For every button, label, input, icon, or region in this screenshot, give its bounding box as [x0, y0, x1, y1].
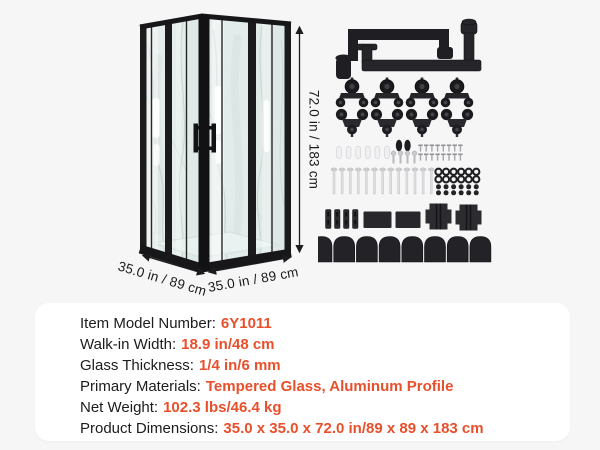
shower-enclosure-diagram: 72.0 in / 183 cm 35.0 in / 89 cm 35.0 in…	[0, 0, 330, 300]
spec-value: 35.0 x 35.0 x 72.0 in/89 x 89 x 183 cm	[223, 420, 483, 437]
spec-label: Primary Materials:	[80, 378, 201, 395]
spec-value: 18.9 in/48 cm	[181, 336, 274, 353]
profile-strips-icon	[326, 210, 359, 229]
spec-label: Walk-in Width:	[80, 336, 176, 353]
spec-label: Item Model Number:	[80, 315, 216, 332]
spec-row-model: Item Model Number:6Y1011	[80, 313, 550, 334]
product-infographic: 72.0 in / 183 cm 35.0 in / 89 cm 35.0 in…	[0, 0, 600, 450]
spec-label: Glass Thickness:	[80, 357, 194, 374]
spec-row-materials: Primary Materials:Tempered Glass, Alumin…	[80, 376, 550, 397]
spec-row-product-dimensions: Product Dimensions:35.0 x 35.0 x 72.0 in…	[80, 418, 550, 439]
long-screws-icon	[331, 168, 434, 194]
mounting-plates-icon	[364, 212, 421, 229]
spec-row-walkin-width: Walk-in Width:18.9 in/48 cm	[80, 334, 550, 355]
hardware-parts-panel	[318, 8, 504, 270]
spec-row-net-weight: Net Weight:102.3 lbs/46.4 kg	[80, 397, 550, 418]
spec-value: 1/4 in/6 mm	[199, 357, 281, 374]
glass-clamps-icon	[426, 204, 482, 231]
bottom-rollers-icon	[336, 109, 473, 137]
spec-row-glass-thickness: Glass Thickness:1/4 in/6 mm	[80, 355, 550, 376]
dome-caps-icon	[318, 237, 491, 263]
spec-value: 102.3 lbs/46.4 kg	[163, 399, 281, 416]
spec-label: Net Weight:	[80, 399, 158, 416]
small-screws-icon	[418, 145, 462, 161]
top-rollers-icon	[336, 78, 474, 108]
product-specs-card: Item Model Number:6Y1011 Walk-in Width:1…	[35, 303, 570, 441]
spec-value: Tempered Glass, Aluminum Profile	[206, 378, 454, 395]
door-handles-icon	[336, 19, 482, 79]
spec-value: 6Y1011	[221, 315, 272, 332]
rubber-plugs-icon	[396, 140, 411, 152]
o-rings-icon	[435, 169, 479, 183]
short-screws-icon	[391, 151, 417, 164]
wall-anchors-icon	[337, 147, 390, 159]
spec-label: Product Dimensions:	[80, 420, 218, 437]
screw-cap-dots-icon	[436, 184, 479, 195]
